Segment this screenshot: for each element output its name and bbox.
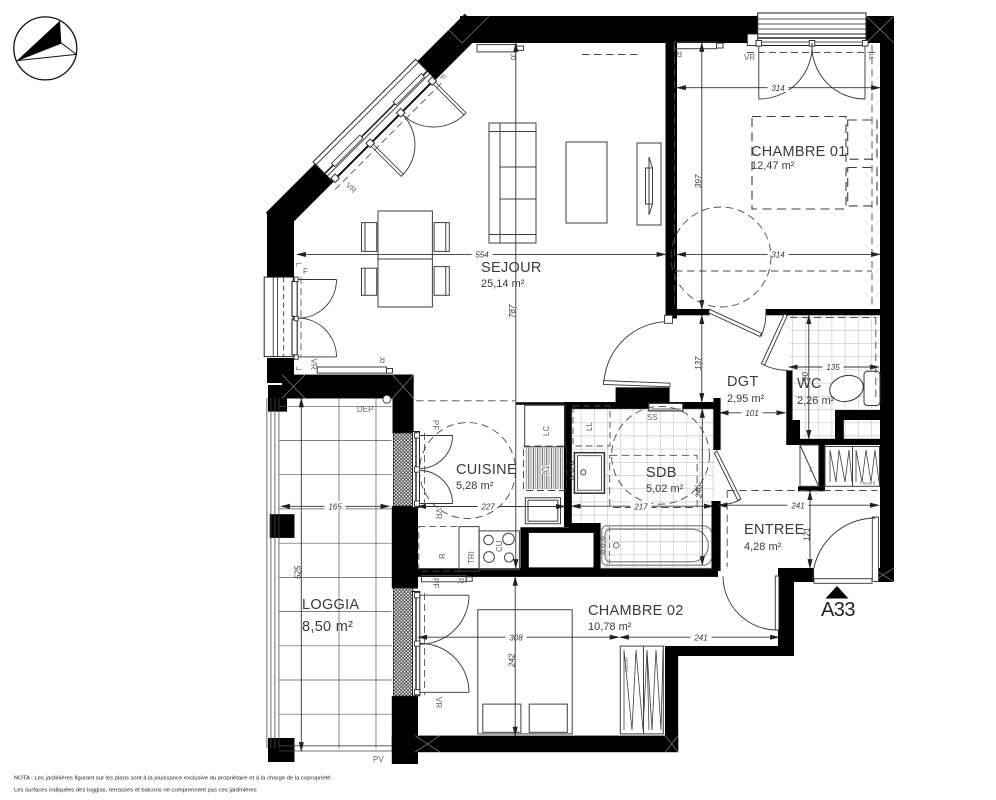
svg-text:DGT: DGT	[727, 374, 759, 390]
svg-text:CUISINE: CUISINE	[456, 462, 517, 478]
svg-text:Les surfaces indiquées des log: Les surfaces indiquées des loggias, terr…	[14, 788, 257, 794]
svg-text:PF: PF	[431, 420, 440, 430]
svg-text:CU: CU	[495, 540, 504, 552]
svg-text:5,28 m²: 5,28 m²	[456, 480, 494, 492]
svg-text:PF: PF	[431, 578, 440, 588]
svg-text:314: 314	[771, 251, 785, 260]
svg-text:135: 135	[826, 363, 840, 372]
svg-text:R: R	[676, 49, 682, 58]
svg-text:Placard: Placard	[860, 481, 876, 486]
svg-text:F: F	[869, 53, 874, 62]
svg-text:308: 308	[509, 633, 523, 642]
svg-text:PV: PV	[373, 755, 384, 764]
svg-text:VR: VR	[744, 53, 755, 62]
svg-text:SDB: SDB	[646, 465, 677, 481]
svg-text:525: 525	[294, 565, 303, 579]
svg-text:LL: LL	[585, 422, 594, 431]
svg-text:4,28 m²: 4,28 m²	[744, 541, 782, 553]
svg-text:60x243: 60x243	[624, 657, 629, 672]
svg-text:NOTA : Les jardinières figuran: NOTA : Les jardinières figurant sur les …	[14, 776, 331, 782]
svg-text:787: 787	[508, 304, 517, 318]
svg-text:VR: VR	[344, 181, 358, 195]
svg-text:227: 227	[480, 503, 495, 512]
svg-text:84: 84	[808, 466, 813, 472]
svg-text:246: 246	[695, 484, 704, 499]
svg-text:A1: A1	[542, 465, 551, 475]
svg-text:137: 137	[694, 356, 703, 370]
svg-text:SS: SS	[647, 413, 658, 422]
svg-text:217: 217	[633, 502, 648, 511]
svg-text:TRI: TRI	[467, 551, 476, 564]
svg-text:R: R	[438, 553, 447, 559]
svg-text:10,78 m²: 10,78 m²	[588, 621, 632, 633]
svg-text:LC: LC	[542, 426, 551, 436]
svg-text:241: 241	[790, 501, 804, 510]
svg-text:241: 241	[693, 633, 707, 642]
svg-text:VR: VR	[309, 359, 318, 370]
svg-text:242: 242	[508, 653, 517, 668]
svg-text:R: R	[456, 578, 465, 584]
svg-text:165: 165	[328, 503, 342, 512]
svg-text:25,14 m²: 25,14 m²	[481, 278, 525, 290]
svg-text:R: R	[510, 52, 516, 61]
svg-text:314: 314	[771, 84, 785, 93]
svg-text:2,95 m²: 2,95 m²	[727, 393, 765, 405]
svg-text:2,26 m²: 2,26 m²	[797, 395, 835, 407]
svg-text:5,02 m²: 5,02 m²	[646, 483, 684, 495]
svg-text:LOGGIA: LOGGIA	[302, 597, 359, 613]
svg-text:WC: WC	[797, 376, 822, 392]
svg-text:SEJOUR: SEJOUR	[481, 260, 542, 276]
svg-text:554: 554	[475, 251, 489, 260]
svg-text:CHAMBRE 01: CHAMBRE 01	[751, 144, 847, 160]
svg-text:CHAMBRE 02: CHAMBRE 02	[588, 603, 684, 619]
svg-text:DEP: DEP	[357, 405, 373, 414]
svg-text:ENTREE: ENTREE	[744, 522, 805, 538]
svg-text:F: F	[303, 267, 308, 276]
svg-text:8,50 m²: 8,50 m²	[302, 619, 353, 635]
svg-text:VR: VR	[434, 508, 443, 519]
svg-text:397: 397	[694, 174, 703, 188]
svg-text:A33: A33	[821, 599, 855, 621]
svg-text:VR: VR	[434, 697, 443, 708]
svg-text:12,47 m²: 12,47 m²	[751, 160, 795, 172]
svg-text:R: R	[379, 355, 385, 364]
svg-text:101: 101	[745, 409, 758, 418]
